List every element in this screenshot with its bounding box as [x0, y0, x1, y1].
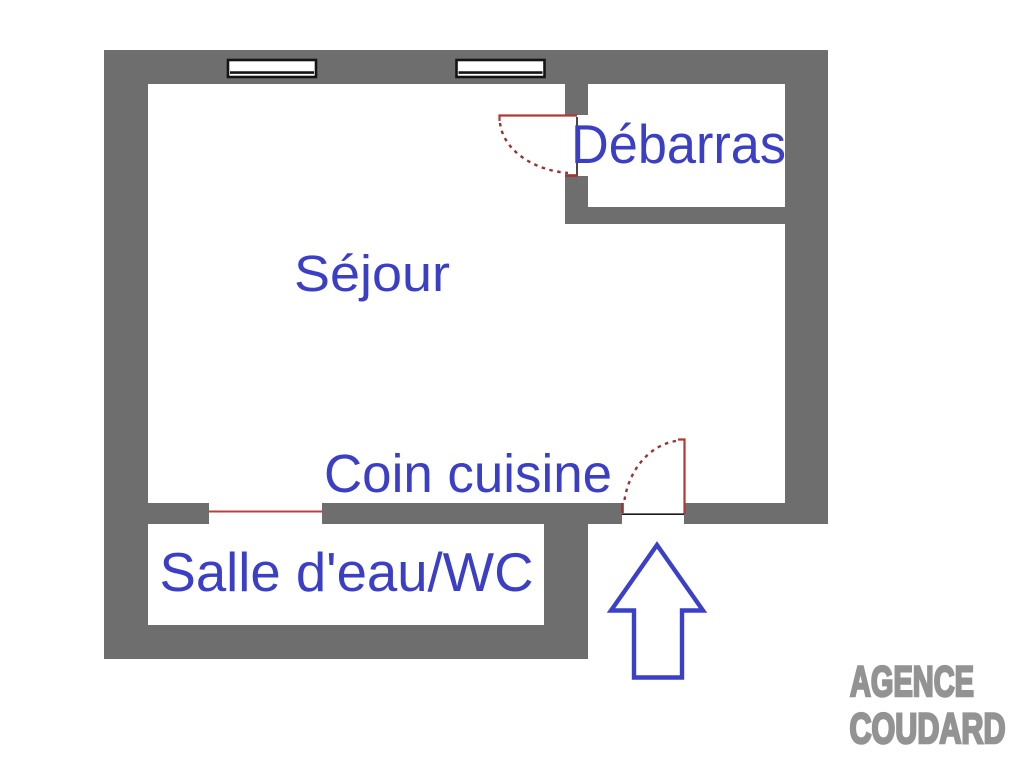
svg-text:Coin cuisine: Coin cuisine: [324, 444, 612, 504]
svg-text:Débarras: Débarras: [571, 113, 786, 175]
svg-text:Séjour: Séjour: [294, 245, 450, 302]
svg-text:COUDARD: COUDARD: [850, 705, 1006, 753]
svg-text:Salle d'eau/WC: Salle d'eau/WC: [160, 541, 534, 603]
svg-text:AGENCE: AGENCE: [850, 658, 974, 706]
